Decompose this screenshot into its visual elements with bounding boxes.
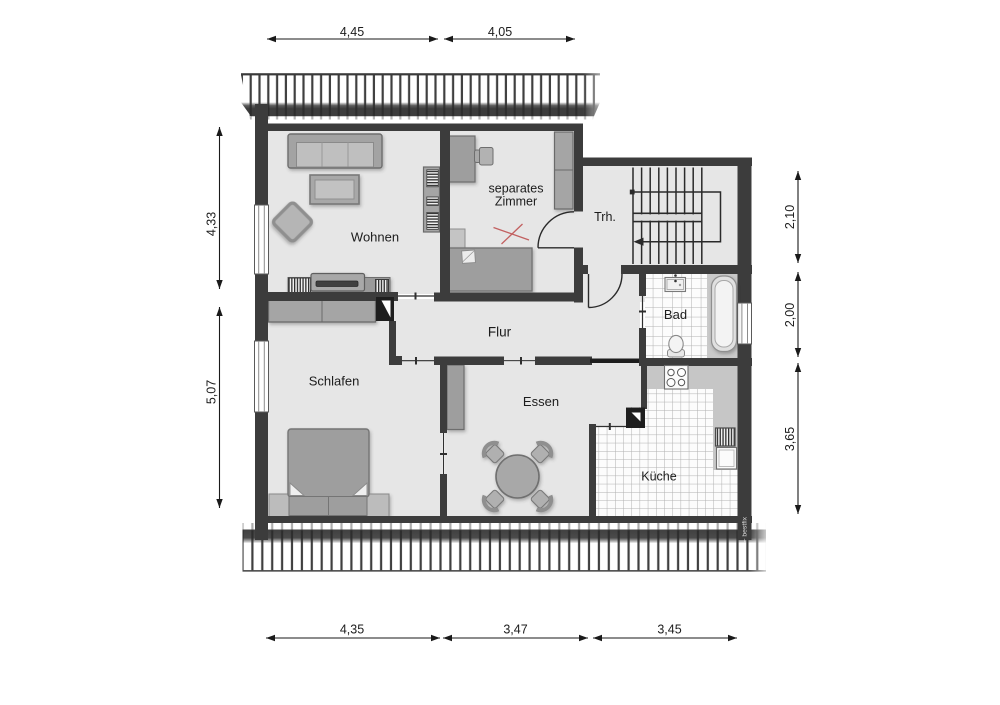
svg-text:Wohnen: Wohnen <box>351 230 399 245</box>
svg-text:2,00: 2,00 <box>783 303 797 327</box>
svg-text:4,35: 4,35 <box>340 623 364 637</box>
svg-text:3,45: 3,45 <box>657 623 681 637</box>
svg-text:Trh.: Trh. <box>594 210 616 224</box>
svg-text:4,45: 4,45 <box>340 25 364 39</box>
svg-text:⌐ bestfix: ⌐ bestfix <box>742 516 749 542</box>
svg-text:4,33: 4,33 <box>205 212 219 236</box>
svg-text:Flur: Flur <box>488 325 512 340</box>
svg-text:5,07: 5,07 <box>205 380 219 404</box>
svg-text:3,65: 3,65 <box>783 427 797 451</box>
svg-text:Essen: Essen <box>523 394 559 409</box>
svg-text:3,47: 3,47 <box>503 623 527 637</box>
svg-text:Küche: Küche <box>641 470 676 484</box>
svg-text:separates: separates <box>489 182 544 196</box>
svg-text:Zimmer: Zimmer <box>495 195 537 209</box>
svg-text:Bad: Bad <box>664 307 687 322</box>
svg-text:Schlafen: Schlafen <box>309 374 360 389</box>
svg-text:4,05: 4,05 <box>488 25 512 39</box>
svg-text:2,10: 2,10 <box>783 205 797 229</box>
